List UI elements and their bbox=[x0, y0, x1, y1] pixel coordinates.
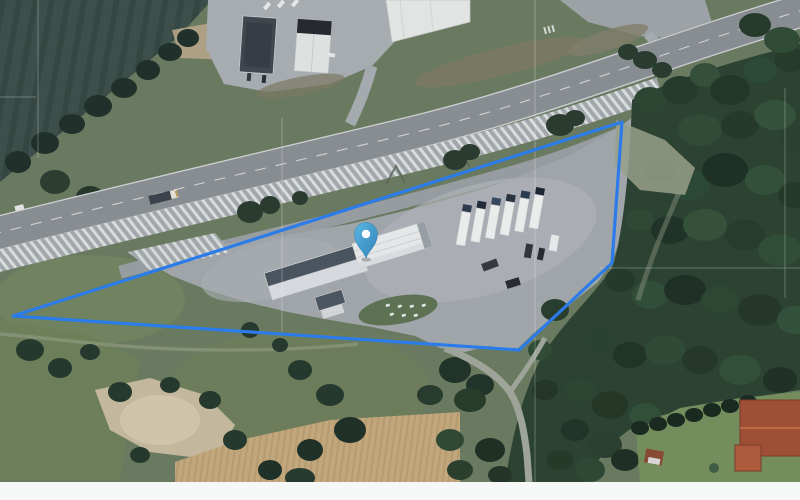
map-viewport[interactable] bbox=[0, 0, 800, 500]
page-bottom-strip bbox=[0, 482, 800, 500]
satellite-map[interactable] bbox=[0, 0, 800, 500]
imagery-layer bbox=[0, 0, 800, 488]
atmosphere-tint bbox=[0, 0, 800, 482]
pin-center-dot bbox=[362, 230, 370, 238]
